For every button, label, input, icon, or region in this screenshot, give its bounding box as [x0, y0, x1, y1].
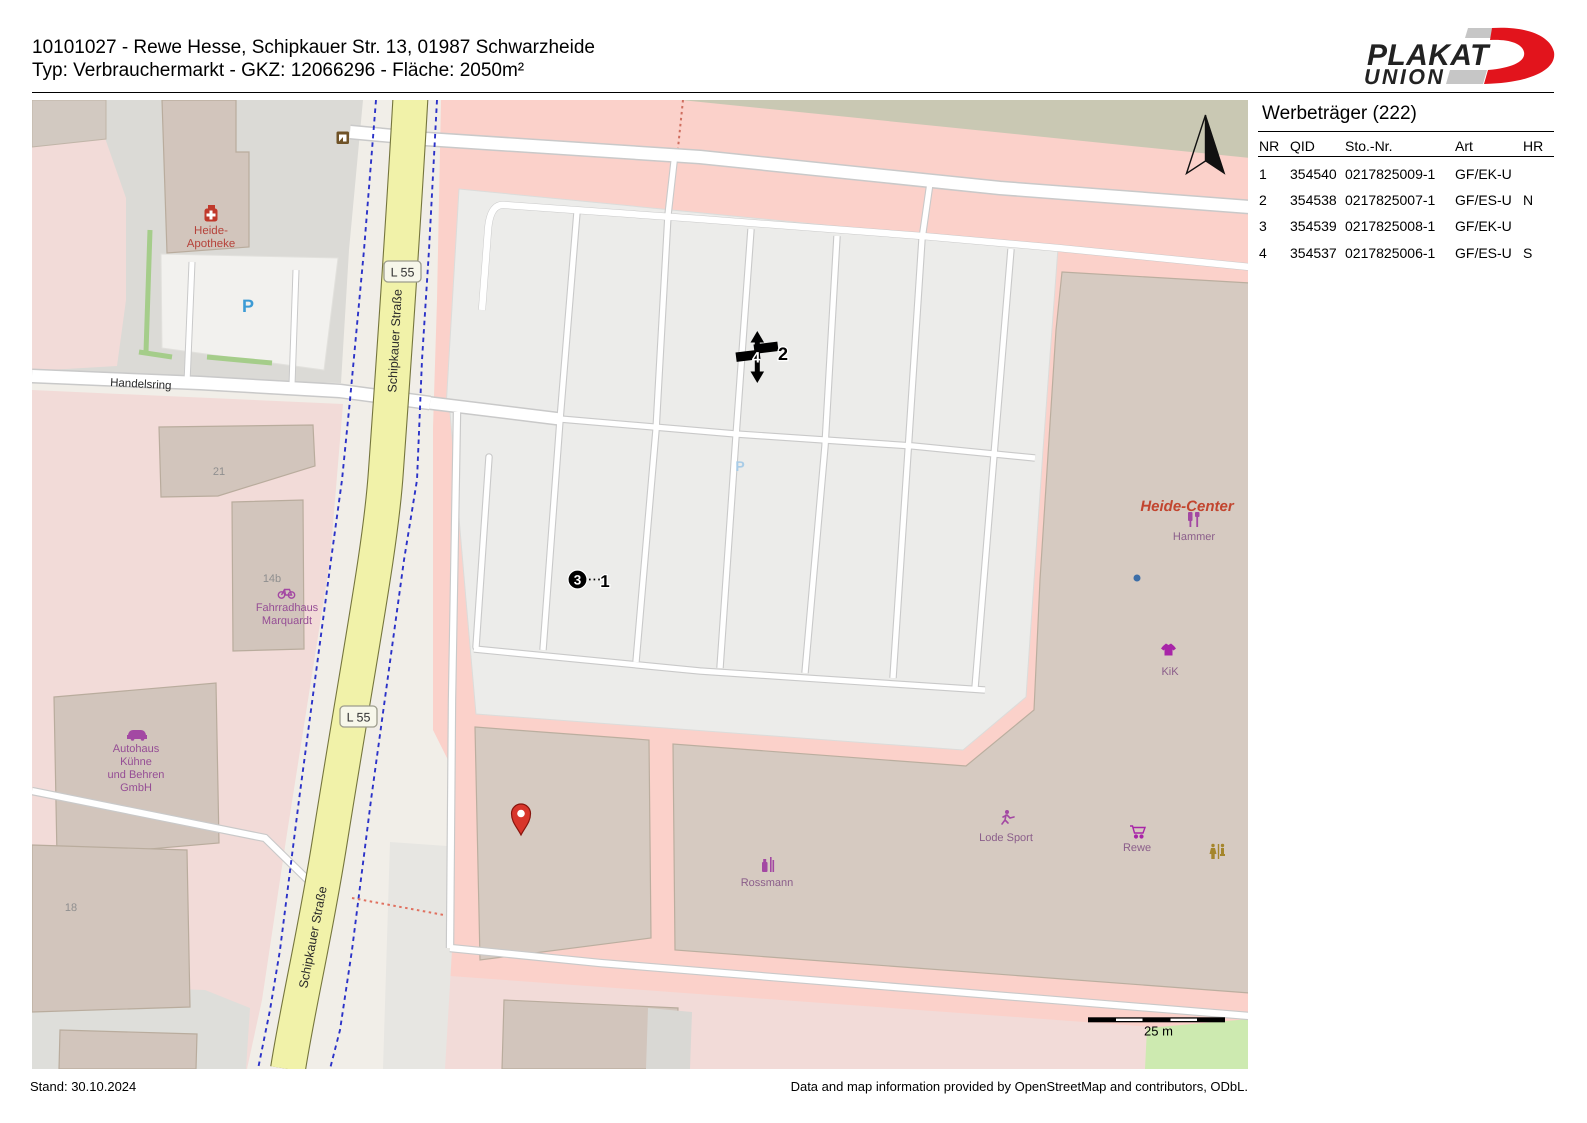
svg-text:25 m: 25 m — [1144, 1024, 1173, 1039]
svg-text:L 55: L 55 — [391, 266, 415, 280]
svg-text:L 55: L 55 — [347, 711, 371, 725]
svg-text:KiK: KiK — [1161, 666, 1179, 678]
svg-text:UNION: UNION — [1364, 65, 1445, 89]
svg-text:Autohaus: Autohaus — [113, 743, 160, 755]
svg-text:Lode Sport: Lode Sport — [979, 832, 1033, 844]
svg-text:14b: 14b — [263, 573, 281, 585]
svg-text:Marquardt: Marquardt — [262, 615, 312, 627]
svg-text:GmbH: GmbH — [120, 782, 152, 794]
svg-text:3: 3 — [574, 573, 582, 588]
svg-text:Heide-: Heide- — [194, 225, 228, 237]
svg-text:Apotheke: Apotheke — [187, 238, 236, 250]
svg-text:und Behren: und Behren — [108, 769, 165, 781]
svg-text:Hammer: Hammer — [1173, 531, 1216, 543]
svg-text:Rewe: Rewe — [1123, 842, 1151, 854]
svg-text:Kühne: Kühne — [120, 756, 152, 768]
svg-text:4: 4 — [752, 350, 761, 367]
svg-text:Rossmann: Rossmann — [741, 877, 794, 889]
svg-text:18: 18 — [65, 902, 77, 914]
svg-text:2: 2 — [778, 344, 788, 364]
svg-text:P: P — [242, 296, 254, 316]
svg-text:Heide-Center: Heide-Center — [1140, 498, 1235, 515]
svg-text:21: 21 — [213, 466, 225, 478]
svg-text:P: P — [735, 458, 744, 474]
svg-text:1: 1 — [600, 572, 609, 591]
svg-text:Fahrradhaus: Fahrradhaus — [256, 602, 319, 614]
